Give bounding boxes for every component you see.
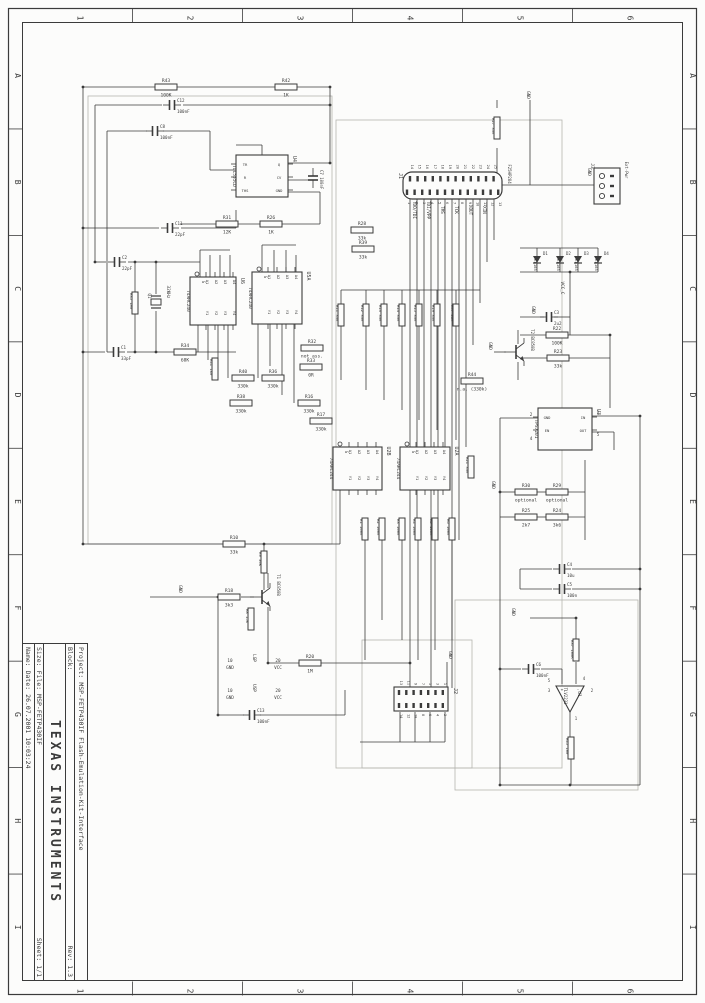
resistor-body <box>275 84 297 90</box>
resistor-body <box>547 355 569 361</box>
connector-j1-pin-number: 8 <box>460 202 464 204</box>
ic-pin-label: A2 <box>276 275 281 280</box>
resistor-ref: R2 100k <box>376 519 381 536</box>
connector-j2-pin-number: 3 <box>436 683 440 685</box>
junction-dot <box>82 351 85 354</box>
junction-dot <box>155 351 158 354</box>
resistor-ref: R3 100k <box>396 519 401 536</box>
resistor-ref: R12 33k <box>360 305 365 322</box>
connector-j1-pin-number: 4 <box>430 202 434 204</box>
resistor-ref: R29 <box>553 483 562 489</box>
ic-pin-label: A2 <box>357 450 362 455</box>
ic-pin-label: A4 <box>442 450 447 455</box>
resistor-ref: R14 33k <box>396 305 401 322</box>
opamp-pin-number: 3 <box>548 688 551 693</box>
resistor-ref: R13 33k <box>378 305 383 322</box>
ic-pin-label: OUT <box>580 428 588 433</box>
ic-pin-label: Y4 <box>294 310 299 315</box>
grid-letter: B <box>688 180 697 185</box>
diode-part: LL103 <box>574 259 579 270</box>
resistor-body <box>218 594 240 600</box>
connector-j3-part: Ext-Pwr <box>624 162 629 179</box>
resistor-ref: R33 <box>307 358 316 364</box>
diode-part: LL103 <box>533 259 538 270</box>
ic-pin-label: A4 <box>375 450 380 455</box>
capacitor-value: 100nF <box>257 719 270 724</box>
resistor-value: n.a. (330k) <box>457 387 487 393</box>
opamp-plus: + <box>561 688 564 693</box>
capacitor-ref: C12 <box>177 98 185 103</box>
grid-number: 4 <box>406 16 415 21</box>
group-outline <box>455 600 638 790</box>
resistor-ref: R31 <box>223 215 232 221</box>
grid-number: 6 <box>626 16 635 21</box>
ic-pin-label: Y3 <box>433 476 438 481</box>
ic-pin-label: A1 <box>348 450 353 455</box>
net-label: 4 <box>530 436 533 442</box>
resistor-body <box>216 221 238 227</box>
junction-dot <box>263 543 266 546</box>
resistor-value: 330k <box>267 384 278 390</box>
connector-j1-pin-number: 12 <box>491 202 495 206</box>
ic-ref: U3 <box>595 409 601 415</box>
resistor-ref: R47 33k <box>450 305 455 322</box>
connector-j2-pin-number: 4 <box>436 714 440 716</box>
resistor-ref: R10 <box>230 535 239 541</box>
capacitor-ref: C1 <box>121 345 127 350</box>
capacitor-value: 22pF <box>175 232 186 237</box>
connector-j1-pin-number: 20 <box>456 165 460 169</box>
connector-j1-pin-number: 18 <box>440 165 444 169</box>
ic-pin-label: GND <box>544 415 552 420</box>
resistor-ref: R4 100k <box>412 519 417 536</box>
resistor-ref: R11 33k <box>335 305 340 322</box>
ic-ref: U6 <box>239 278 245 284</box>
connector-j1-pin-number: 14 <box>410 165 414 169</box>
connector-j1-pin-number: 15 <box>418 165 422 169</box>
connector-j1-pin-number: 22 <box>471 165 475 169</box>
resistor-ref: R39 <box>359 240 368 246</box>
crystal-value: 32KHz <box>165 286 171 299</box>
diode-ref: D3 <box>584 251 589 256</box>
connector-j1-pin <box>474 190 476 196</box>
connector-j1-pin <box>406 190 408 196</box>
resistor-ref: R16 <box>305 394 314 400</box>
title-block-table: Project: MSP-FETP430IF Flash-Emulation-K… <box>22 643 88 981</box>
ic-ref: U5A <box>305 271 311 280</box>
connector-j2-ref: J2 <box>452 688 458 694</box>
connector-j1-pin-number: 5 <box>437 202 441 204</box>
net-label: 20 <box>275 688 281 694</box>
ic-pin-label: A3 <box>433 450 438 455</box>
resistor-body <box>174 349 196 355</box>
ic-pin-label: A3 <box>285 275 290 280</box>
opamp-pin-number: 4 <box>583 676 586 681</box>
net-label: GND <box>226 665 234 671</box>
net-label: 10 <box>227 688 233 694</box>
resistor-ref: R38 <box>237 394 246 400</box>
connector-j2-pin-number: 14 <box>399 714 403 718</box>
connector-j1-pin <box>459 190 461 196</box>
connector-j1-pin-number: 23 <box>478 165 482 169</box>
resistor-body <box>298 400 320 406</box>
connector-j1-pin <box>489 190 491 196</box>
net-label: XOUT <box>467 205 473 216</box>
ic-pin-label: A1 <box>267 275 272 280</box>
connector-j1-pin <box>454 176 456 182</box>
net-label: 5 <box>597 432 600 438</box>
resistor-value: 2k7 <box>522 523 531 529</box>
resistor-value: 0R <box>308 373 314 379</box>
transistor-arrow <box>520 356 524 361</box>
ic-pin-label: Y4 <box>375 476 380 481</box>
title-row-company: TEXAS INSTRUMENTS <box>43 644 64 980</box>
capacitor-value: 33pF <box>121 356 132 361</box>
junction-dot <box>267 662 270 665</box>
connector-j1-pin <box>444 190 446 196</box>
title-row-project: Project: MSP-FETP430IF Flash-Emulation-K… <box>74 644 87 980</box>
net-label: GND <box>525 91 531 99</box>
ic-part: 74AHC240 <box>247 287 253 309</box>
grid-number: 5 <box>516 16 525 21</box>
ic-pin-label: CV <box>277 175 282 180</box>
resistor-body <box>299 660 321 666</box>
resistor-body <box>546 514 568 520</box>
connector-j1-pin-number: 7 <box>453 202 457 204</box>
schematic-canvas: 112233445566AABBCCDDEEFFGGHHIIGNDGNDVCC_… <box>0 0 705 1003</box>
resistor-ref: R17 <box>317 412 326 418</box>
grid-letter: G <box>13 712 22 717</box>
connector-j1-pin <box>447 176 449 182</box>
resistor-body <box>546 332 568 338</box>
size-label: Size: <box>35 647 43 667</box>
net-label: 10 <box>227 658 233 664</box>
project-label: Project: <box>77 647 85 678</box>
capacitor-value: 10u <box>567 573 575 578</box>
ic-pin-label: Y3 <box>366 476 371 481</box>
title-row-date: Name: Date: 26.07.2001 10:03:24 <box>23 644 34 980</box>
resistor-ref: R32 <box>308 339 317 345</box>
capacitor-ref: C8 <box>160 124 166 129</box>
net-label: VCC <box>274 665 282 671</box>
junction-dot <box>409 662 412 665</box>
connector-j1-part: F25HP284 <box>507 164 512 184</box>
date-label: Date: <box>24 671 32 691</box>
resistor-value: 330k <box>237 384 248 390</box>
junction-dot <box>329 86 332 89</box>
grid-letter: F <box>688 606 697 611</box>
connector-j2-pin-number: 13 <box>399 681 403 685</box>
net-label: TMS <box>439 206 445 214</box>
diode-ref: D2 <box>566 251 571 256</box>
resistor-ref: R5 100k <box>429 519 434 536</box>
connector-j3-pin <box>610 185 614 187</box>
connector-j2-pin-number: 8 <box>421 714 425 716</box>
connector-j2-pin <box>398 690 400 695</box>
ic-part: 74AHC244 <box>395 458 401 480</box>
connector-j2-pin <box>420 703 422 708</box>
capacitor-ref: C6 <box>536 662 542 667</box>
net-label: TCK <box>453 206 459 214</box>
resistor-value: 1K <box>283 93 289 99</box>
resistor-ref: R21 33k <box>465 457 470 474</box>
resistor-ref: R35 1M0 <box>129 293 134 310</box>
net-label: GND <box>490 481 496 489</box>
connector-j1-pin <box>467 190 469 196</box>
opamp-part: TLV2231 <box>563 688 568 705</box>
resistor-value: 3k6 <box>553 523 562 529</box>
resistor-value: 100K <box>160 93 171 99</box>
resistor-value: 3k3 <box>225 603 234 609</box>
resistor-body <box>301 345 323 351</box>
grid-letter: G <box>688 712 697 717</box>
resistor-ref: R19 33k <box>431 305 436 322</box>
ic-pin-label: Y4 <box>232 311 237 316</box>
junction-dot <box>329 104 332 107</box>
resistor-value: 1K <box>268 230 274 236</box>
connector-j1-pin-number: 25 <box>494 165 498 169</box>
connector-j2-pin <box>434 690 436 695</box>
ic-pin-label: Y1 <box>205 311 210 316</box>
ic-ref: U2B <box>385 446 391 455</box>
connector-j2-pin <box>405 703 407 708</box>
ic-pin-label: A1 <box>205 280 210 285</box>
resistor-ref: R34 <box>181 343 190 349</box>
connector-j1-pin-number: 19 <box>448 165 452 169</box>
connector-j1-pin-number: 1 <box>407 202 411 204</box>
file-value: MSP-FETP430IF <box>35 694 43 745</box>
ic-pin-label: Y2 <box>357 476 362 481</box>
title-block: Project: MSP-FETP430IF Flash-Emulation-K… <box>22 643 88 981</box>
ic-pin-label: Y3 <box>223 311 228 316</box>
connector-j1-pin <box>470 176 472 182</box>
ic-pin-label: A4 <box>294 275 299 280</box>
capacitor-value: 100nF <box>160 135 173 140</box>
grid-number: 3 <box>296 989 305 994</box>
junction-dot <box>329 162 332 165</box>
ic-g-bubble <box>257 267 261 271</box>
resistor-body <box>546 489 568 495</box>
net-label: GND <box>586 168 592 176</box>
connector-j1-ref: J1 <box>397 173 403 179</box>
resistor-body <box>310 418 332 424</box>
junction-dot <box>569 784 572 787</box>
connector-j2-pin-number: 12 <box>406 714 410 718</box>
resistor-value: optional <box>515 498 537 504</box>
connector-j1-pin-number: 16 <box>425 165 429 169</box>
junction-dot <box>609 334 612 337</box>
ic-pin-label: Y1 <box>415 476 420 481</box>
connector-j1-pin <box>477 176 479 182</box>
resistor-ref: R9 30K <box>258 552 263 567</box>
ic-pin-label: Y4 <box>442 476 447 481</box>
junction-dot <box>639 568 642 571</box>
connector-j2-pin <box>427 690 429 695</box>
company-name: TEXAS INSTRUMENTS <box>47 720 62 904</box>
connector-j1-pin-number: 13 <box>498 202 502 206</box>
ic-pin-label: A4 <box>232 280 237 285</box>
junction-dot <box>82 86 85 89</box>
grid-letter: C <box>13 286 22 291</box>
transistor-ref: T2 BC850B <box>530 329 535 351</box>
connector-j2-pin <box>405 690 407 695</box>
resistor-value: 33k <box>554 364 563 370</box>
grid-letter: C <box>688 286 697 291</box>
grid-letter: E <box>688 499 697 504</box>
grid-letter: H <box>13 818 22 823</box>
connector-j1-pin-number: 9 <box>468 202 472 204</box>
capacitor-ref: C2 <box>122 255 128 260</box>
connector-j3-ref: J3 <box>589 163 595 169</box>
net-label: GND <box>447 651 453 659</box>
grid-letter: B <box>13 180 22 185</box>
transistor-ref: T1 BC850B <box>276 574 281 596</box>
ic-g-bubble <box>405 442 409 446</box>
junction-dot <box>575 617 578 620</box>
sheet-value: 1/1 <box>35 965 43 977</box>
connector-j1-pin <box>497 190 499 196</box>
capacitor-ref: C11 <box>175 221 183 226</box>
file-label: File: <box>35 671 43 691</box>
grid-number: 2 <box>186 16 195 21</box>
connector-j2-pin <box>442 703 444 708</box>
capacitor-ref: C13 <box>257 708 265 713</box>
connector-j2-pin-number: 5 <box>428 683 432 685</box>
resistor-ref: R8 15k <box>245 609 250 624</box>
resistor-ref: R30 <box>522 483 531 489</box>
opamp-minus: - <box>577 688 580 693</box>
connector-j1-pin-number: 10 <box>475 202 479 206</box>
crystal-body <box>151 299 161 305</box>
ic-pin-label: GND <box>276 188 284 193</box>
grid-number: 1 <box>76 16 85 21</box>
opamp-pin-number: 2 <box>591 688 594 693</box>
resistor-ref: R45 100 <box>565 738 570 755</box>
junction-dot <box>639 415 642 418</box>
capacitor-value: 100nF <box>177 109 190 114</box>
connector-j1-pin <box>413 190 415 196</box>
ic-part: 74AHC240 <box>185 290 191 312</box>
ic-pin-label: Y3 <box>285 310 290 315</box>
connector-j2-pin <box>412 690 414 695</box>
connector-j1-pin <box>492 176 494 182</box>
net-label: GND <box>510 608 516 616</box>
diode-part: LL103 <box>556 259 561 270</box>
frame-outer <box>9 9 697 995</box>
resistor-ref: R36 <box>269 369 278 375</box>
ic-pin-label: Y2 <box>276 310 281 315</box>
ic-pin-label: IN <box>581 415 586 420</box>
connector-j2-pin <box>434 703 436 708</box>
transistor-collector <box>516 343 524 349</box>
capacitor-value: 22pF <box>122 266 133 271</box>
ic-pin-label: A3 <box>223 280 228 285</box>
resistor-ref: R26 <box>267 215 276 221</box>
ic-part: TLC555CD <box>231 165 237 187</box>
grid-number: 2 <box>186 989 195 994</box>
connector-j2-pin-number: 7 <box>421 683 425 685</box>
connector-j1-pin <box>416 176 418 182</box>
grid-letter: E <box>13 499 22 504</box>
ic-part: 74AHC244 <box>328 458 334 480</box>
rev-value: 1.3 <box>66 965 74 977</box>
ic-pin-label: TR <box>243 162 248 167</box>
capacitor-value: 100nF <box>536 673 549 678</box>
connector-j2-pin <box>398 703 400 708</box>
opamp-pin-number: 5 <box>548 678 551 683</box>
connector-j1-pin <box>409 176 411 182</box>
capacitor-value: 100n <box>567 593 578 598</box>
connector-j1-pin <box>432 176 434 182</box>
resistor-body <box>351 227 373 233</box>
connector-j1-pin <box>485 176 487 182</box>
project-value: MSP-FETP430IF Flash-Emulation-Kit-Interf… <box>77 682 85 850</box>
net-label: GND <box>226 695 234 701</box>
ic-g-bubble <box>338 442 342 446</box>
capacitor-ref: C5 <box>567 582 573 587</box>
net-label: GND <box>177 585 183 593</box>
net-label: VCC_C <box>559 282 565 295</box>
connector-j3-pin <box>610 175 614 177</box>
resistor-ref: R23 <box>554 349 563 355</box>
diode-ref: D4 <box>604 251 609 256</box>
junction-dot <box>639 588 642 591</box>
junction-dot <box>217 714 220 717</box>
grid-letter: I <box>13 925 22 930</box>
ic-pin-label: THS <box>242 188 250 193</box>
connector-j1-pin <box>462 176 464 182</box>
connector-j1-pin-number: 6 <box>445 202 449 204</box>
transistor-collector <box>262 588 270 594</box>
resistor-value: 33k <box>230 550 239 556</box>
resistor-body <box>155 84 177 90</box>
ic-g-bubble <box>195 272 199 276</box>
connector-j2-pin-number: 2 <box>443 714 447 716</box>
net-label: USP <box>251 684 257 692</box>
resistor-body <box>232 375 254 381</box>
capacitor-value: 2u2 <box>554 321 562 326</box>
grid-number: 1 <box>76 989 85 994</box>
connector-j1-pin <box>429 190 431 196</box>
resistor-ref: R44 <box>468 372 477 378</box>
junction-dot <box>569 271 572 274</box>
resistor-body <box>300 364 322 370</box>
title-row-block: Block: Rev: 1.3 <box>65 644 75 980</box>
junction-dot <box>499 668 502 671</box>
title-row-file: Size: File: MSP-FETP430IF Sheet: 1/1 <box>34 644 44 980</box>
connector-j1-pin-number: 21 <box>463 165 467 169</box>
resistor-value: 1M <box>307 669 313 675</box>
connector-j2-pin <box>442 690 444 695</box>
resistor-ref: R24 <box>553 508 562 514</box>
ic-pin-label: A2 <box>214 280 219 285</box>
grid-letter: H <box>688 818 697 823</box>
crystal-ref: Q1 <box>146 293 152 299</box>
ic-part: TPS7201 <box>533 420 539 439</box>
capacitor-ref: C4 <box>567 562 573 567</box>
resistor-body <box>262 375 284 381</box>
capacitor-ref: C3 <box>554 310 560 315</box>
grid-number: 3 <box>296 16 305 21</box>
resistor-body <box>461 378 483 384</box>
grid-letter: D <box>13 393 22 398</box>
grid-letter: I <box>688 925 697 930</box>
junction-dot <box>82 543 85 546</box>
ic-box <box>190 277 236 325</box>
grid-number: 6 <box>626 989 635 994</box>
grid-letter: A <box>13 73 22 78</box>
resistor-value: 100K <box>551 341 562 347</box>
